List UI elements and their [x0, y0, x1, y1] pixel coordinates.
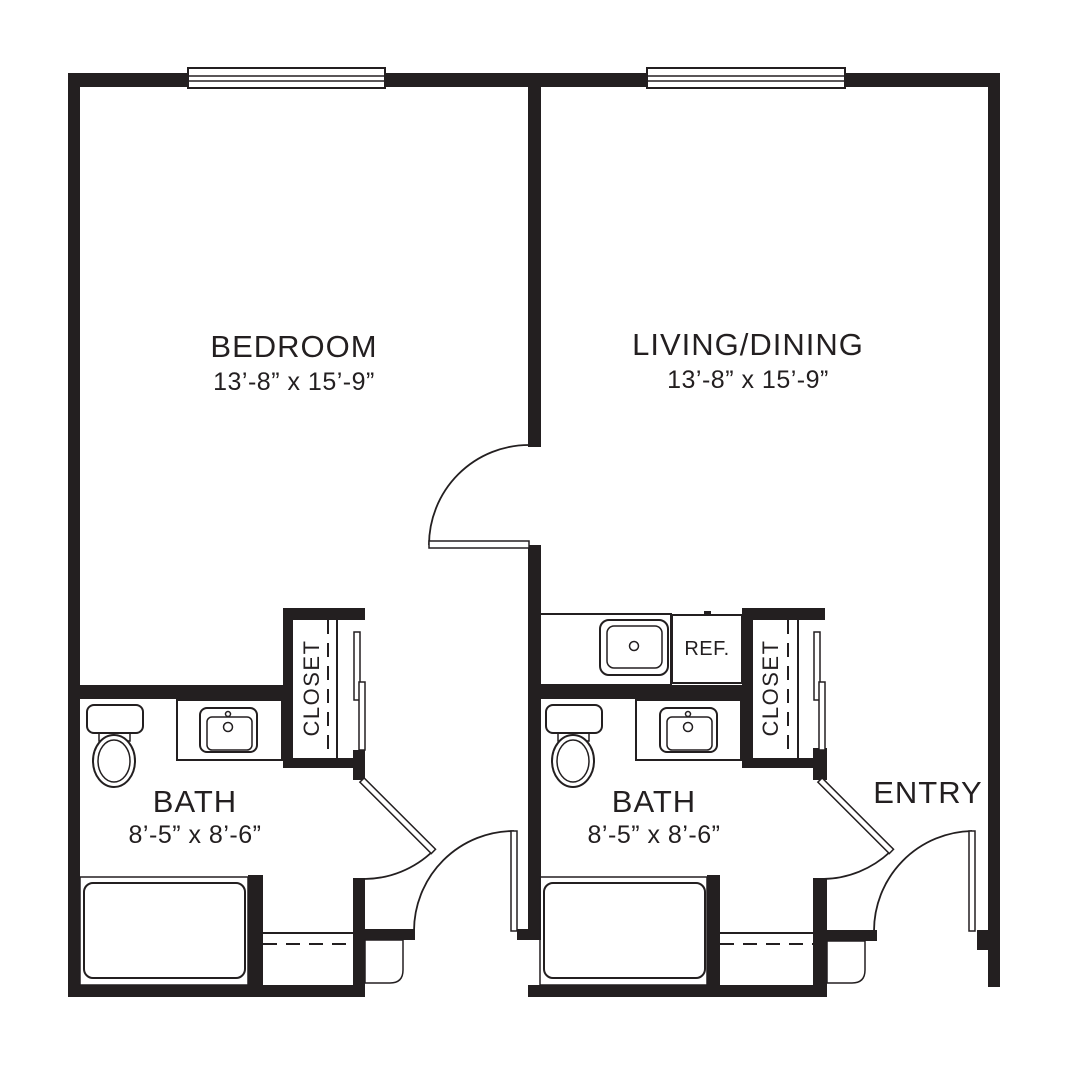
label-refrigerator: REF.	[684, 638, 729, 660]
kitchen-sink-inner	[607, 626, 662, 668]
floor-plan: BEDROOM 13’-8” x 15’-9” LIVING/DINING 13…	[0, 0, 1074, 1066]
label-bedroom-dims: 13’-8” x 15’-9”	[213, 368, 375, 396]
toilet-right-bowl-inner	[557, 740, 589, 782]
wall-bottom-left-unit	[68, 985, 365, 997]
vestibule-right-stub	[813, 878, 827, 997]
closet-left-post	[353, 750, 365, 780]
tub-left	[84, 883, 245, 978]
closet-right-wall-top	[742, 608, 825, 620]
door-arc-bath-right	[822, 851, 891, 879]
floor-plan-svg: BEDROOM 13’-8” x 15’-9” LIVING/DINING 13…	[0, 0, 1074, 1066]
wall-right	[988, 73, 1000, 987]
vanity-left-sink-inner	[207, 717, 252, 750]
wall-bottom-right-unit	[528, 985, 827, 997]
closet-right-wall-side	[742, 608, 753, 768]
closet-right-wall-bottom	[742, 758, 815, 768]
label-bath-left-dims: 8’-5” x 8’-6”	[129, 821, 262, 849]
door-leaf-bath-left	[360, 778, 436, 854]
door-leaf-bedroom	[429, 541, 529, 548]
door-leaf-entry-left	[511, 831, 517, 931]
label-bath-right: BATH	[612, 784, 696, 819]
closet-left-wall-bottom	[283, 758, 353, 768]
tub-left-stub	[248, 875, 263, 987]
entry-right-recessed-wall	[827, 930, 877, 941]
closet-left-wall-side	[283, 608, 293, 768]
walls	[68, 73, 1000, 997]
entry-left-recessed-wall	[365, 929, 415, 940]
door-jamb-entry-right	[977, 930, 1000, 950]
label-bedroom: BEDROOM	[210, 329, 377, 364]
label-living-dims: 13’-8” x 15’-9”	[667, 366, 829, 394]
vestibule-left-stub	[353, 878, 365, 997]
door-arc-bath-left	[364, 851, 433, 879]
tub-right	[544, 883, 705, 978]
wall-middle-lower	[528, 545, 541, 940]
label-bath-right-dims: 8’-5” x 8’-6”	[588, 821, 721, 849]
label-closet-right: CLOSET	[758, 639, 783, 736]
label-entry: ENTRY	[873, 775, 983, 810]
wall-middle-upper	[528, 87, 541, 447]
window-living	[647, 68, 845, 88]
wall-left	[68, 73, 80, 997]
door-arc-bedroom	[429, 445, 529, 545]
closet-left-wall-top	[283, 608, 365, 620]
window-bedroom	[188, 68, 385, 88]
label-bath-left: BATH	[153, 784, 237, 819]
label-living: LIVING/DINING	[632, 327, 864, 362]
toilet-right-tank	[546, 705, 602, 733]
entry-right-bench	[827, 941, 865, 983]
door-leaf-entry-right	[969, 831, 975, 931]
closet-right-post	[813, 748, 827, 780]
entry-left-bench	[365, 940, 403, 983]
vanity-right-sink-inner	[667, 717, 712, 750]
toilet-left-bowl-inner	[98, 740, 130, 782]
closet-right-slider-panel-2	[819, 682, 825, 750]
wall-bath-right	[528, 685, 753, 699]
toilet-left-tank	[87, 705, 143, 733]
wall-bath-left	[68, 685, 293, 699]
door-jamb-entry-left	[517, 929, 541, 940]
tub-right-stub	[707, 875, 720, 987]
closet-left-slider-panel-2	[359, 682, 365, 750]
refrigerator-handle-tick	[704, 611, 711, 616]
label-closet-left: CLOSET	[299, 639, 324, 736]
